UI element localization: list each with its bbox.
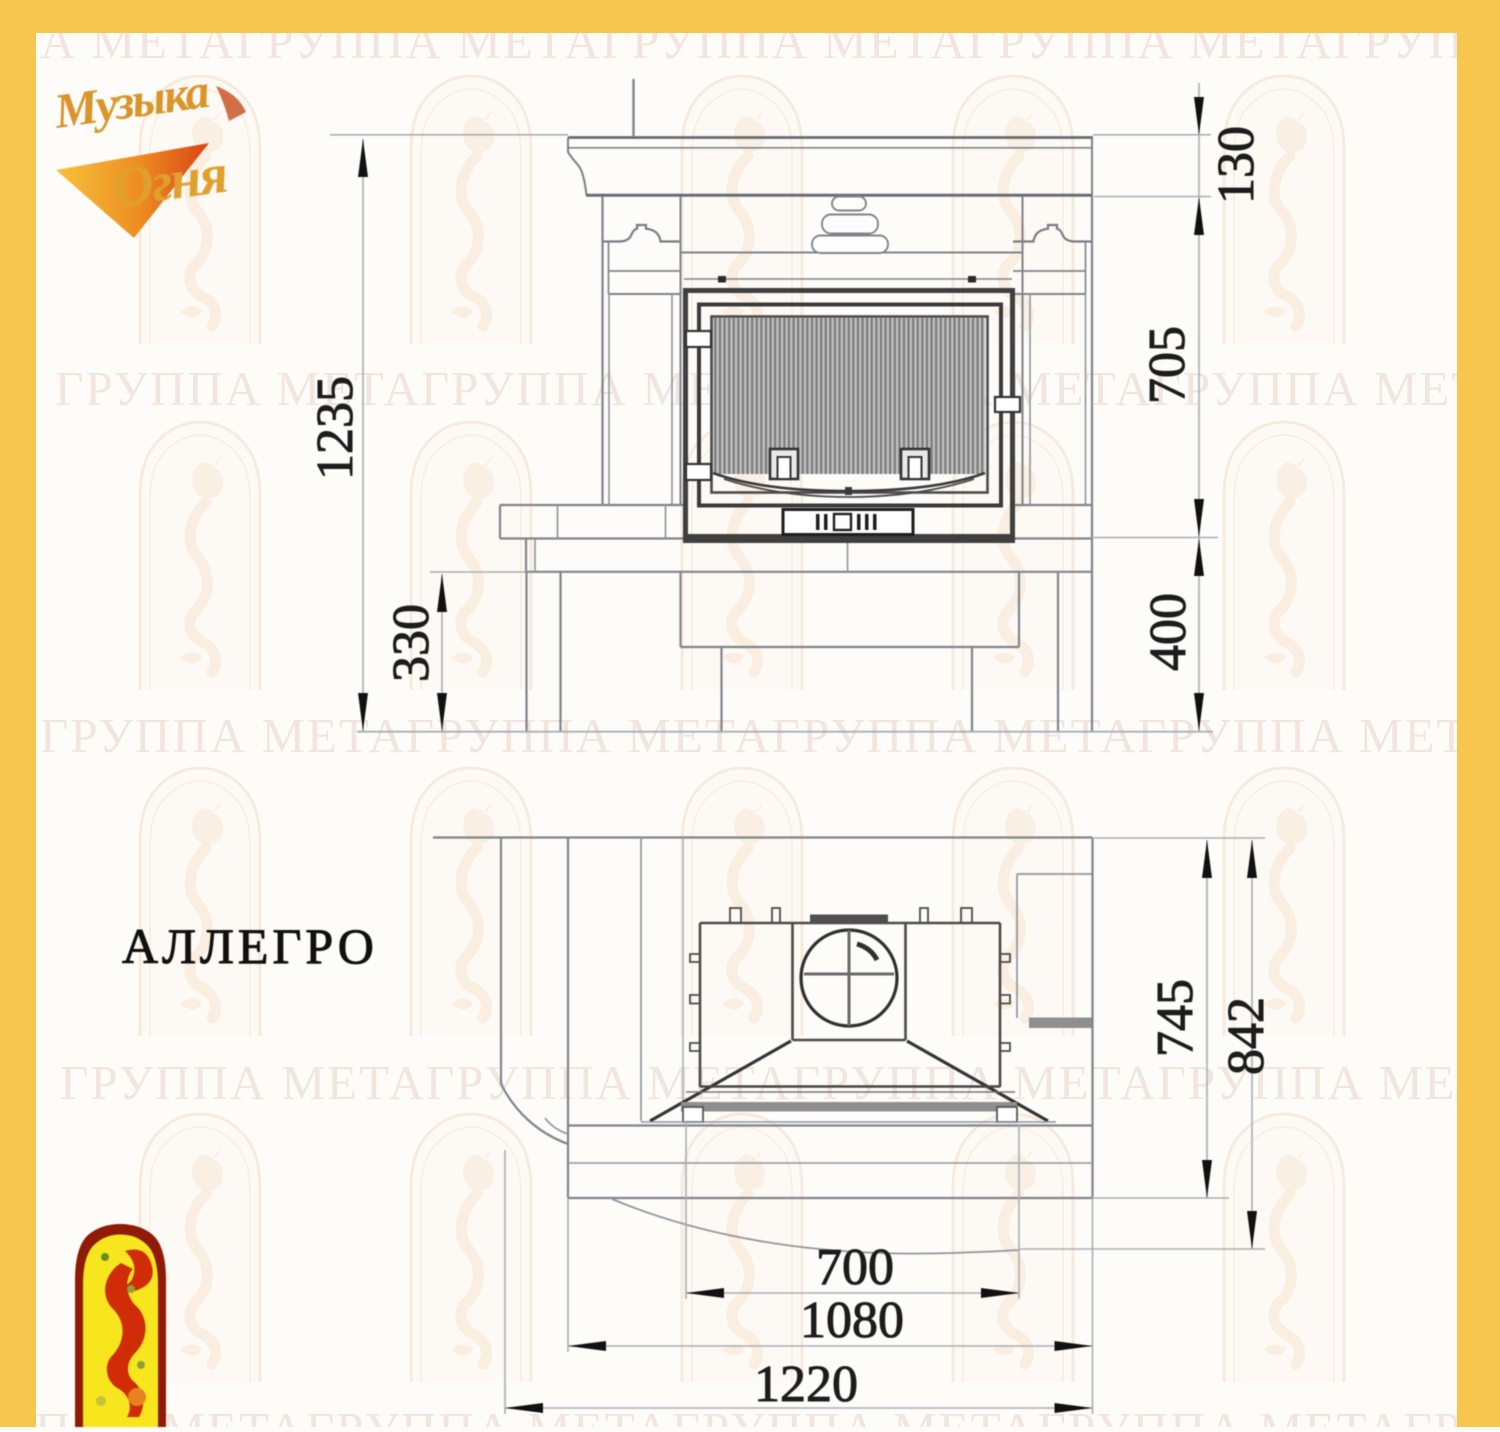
- svg-text:АЛЛЕГРО: АЛЛЕГРО: [122, 918, 378, 974]
- svg-text:330: 330: [383, 604, 440, 682]
- svg-text:Музыка: Музыка: [50, 63, 213, 139]
- svg-text:1235: 1235: [307, 376, 364, 480]
- svg-text:Огня: Огня: [109, 143, 230, 220]
- svg-text:842: 842: [1218, 997, 1275, 1075]
- svg-text:1080: 1080: [800, 1292, 904, 1349]
- svg-text:745: 745: [1147, 979, 1204, 1057]
- svg-text:705: 705: [1139, 326, 1196, 404]
- svg-text:400: 400: [1140, 593, 1197, 671]
- svg-text:130: 130: [1208, 126, 1265, 204]
- svg-text:1220: 1220: [754, 1356, 858, 1413]
- svg-text:700: 700: [816, 1239, 894, 1296]
